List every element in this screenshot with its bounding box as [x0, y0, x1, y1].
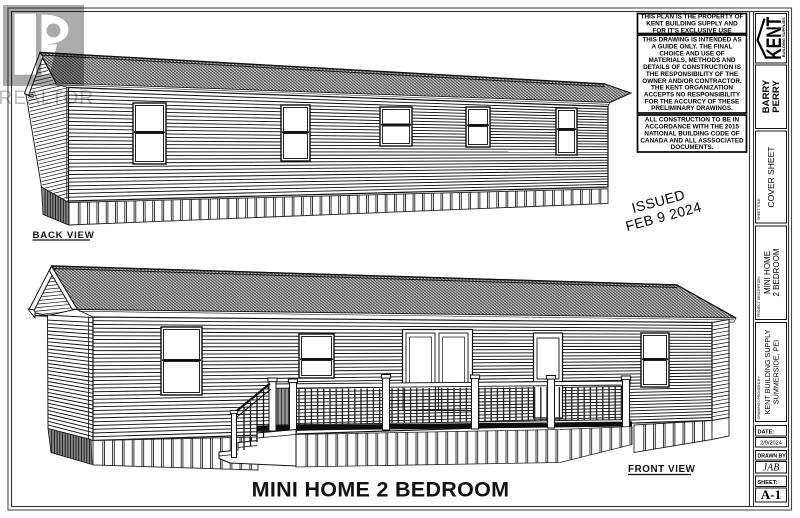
- svg-text:DRAWN BY: DRAWN BY: [758, 454, 787, 460]
- svg-text:SHEET:: SHEET:: [758, 480, 778, 486]
- svg-text:SUMMERSIDE, PEI: SUMMERSIDE, PEI: [772, 340, 781, 404]
- svg-text:JAB: JAB: [763, 463, 780, 474]
- svg-text:PROJECT DESCRIPTION:: PROJECT DESCRIPTION:: [757, 276, 761, 317]
- svg-text:PERRY: PERRY: [771, 80, 782, 113]
- svg-text:BUILDING SUPPLIES: BUILDING SUPPLIES: [782, 17, 786, 57]
- svg-text:A-1: A-1: [761, 487, 781, 502]
- svg-text:DRAWINGS PROVIDED BY:: DRAWINGS PROVIDED BY:: [757, 376, 761, 419]
- svg-text:DATE:: DATE:: [758, 430, 775, 436]
- svg-text:FRONT VIEW: FRONT VIEW: [628, 464, 696, 475]
- svg-text:FOR IT'S EXCLUSIVE USE: FOR IT'S EXCLUSIVE USE: [652, 27, 731, 34]
- svg-text:PRELIMINARY DRAWINGS.: PRELIMINARY DRAWINGS.: [651, 105, 733, 112]
- svg-text:SHEET TITLE:: SHEET TITLE:: [757, 198, 761, 220]
- svg-text:2/9/2024: 2/9/2024: [760, 441, 782, 447]
- svg-text:MINI HOME 2 BEDROOM: MINI HOME 2 BEDROOM: [252, 478, 510, 502]
- svg-text:®: ®: [80, 87, 87, 98]
- svg-text:DOCUMENTS.: DOCUMENTS.: [671, 144, 714, 151]
- svg-text:COVER SHEET: COVER SHEET: [766, 147, 776, 208]
- svg-text:MINI HOME: MINI HOME: [763, 251, 772, 294]
- svg-text:2 BEDROOM: 2 BEDROOM: [772, 248, 781, 296]
